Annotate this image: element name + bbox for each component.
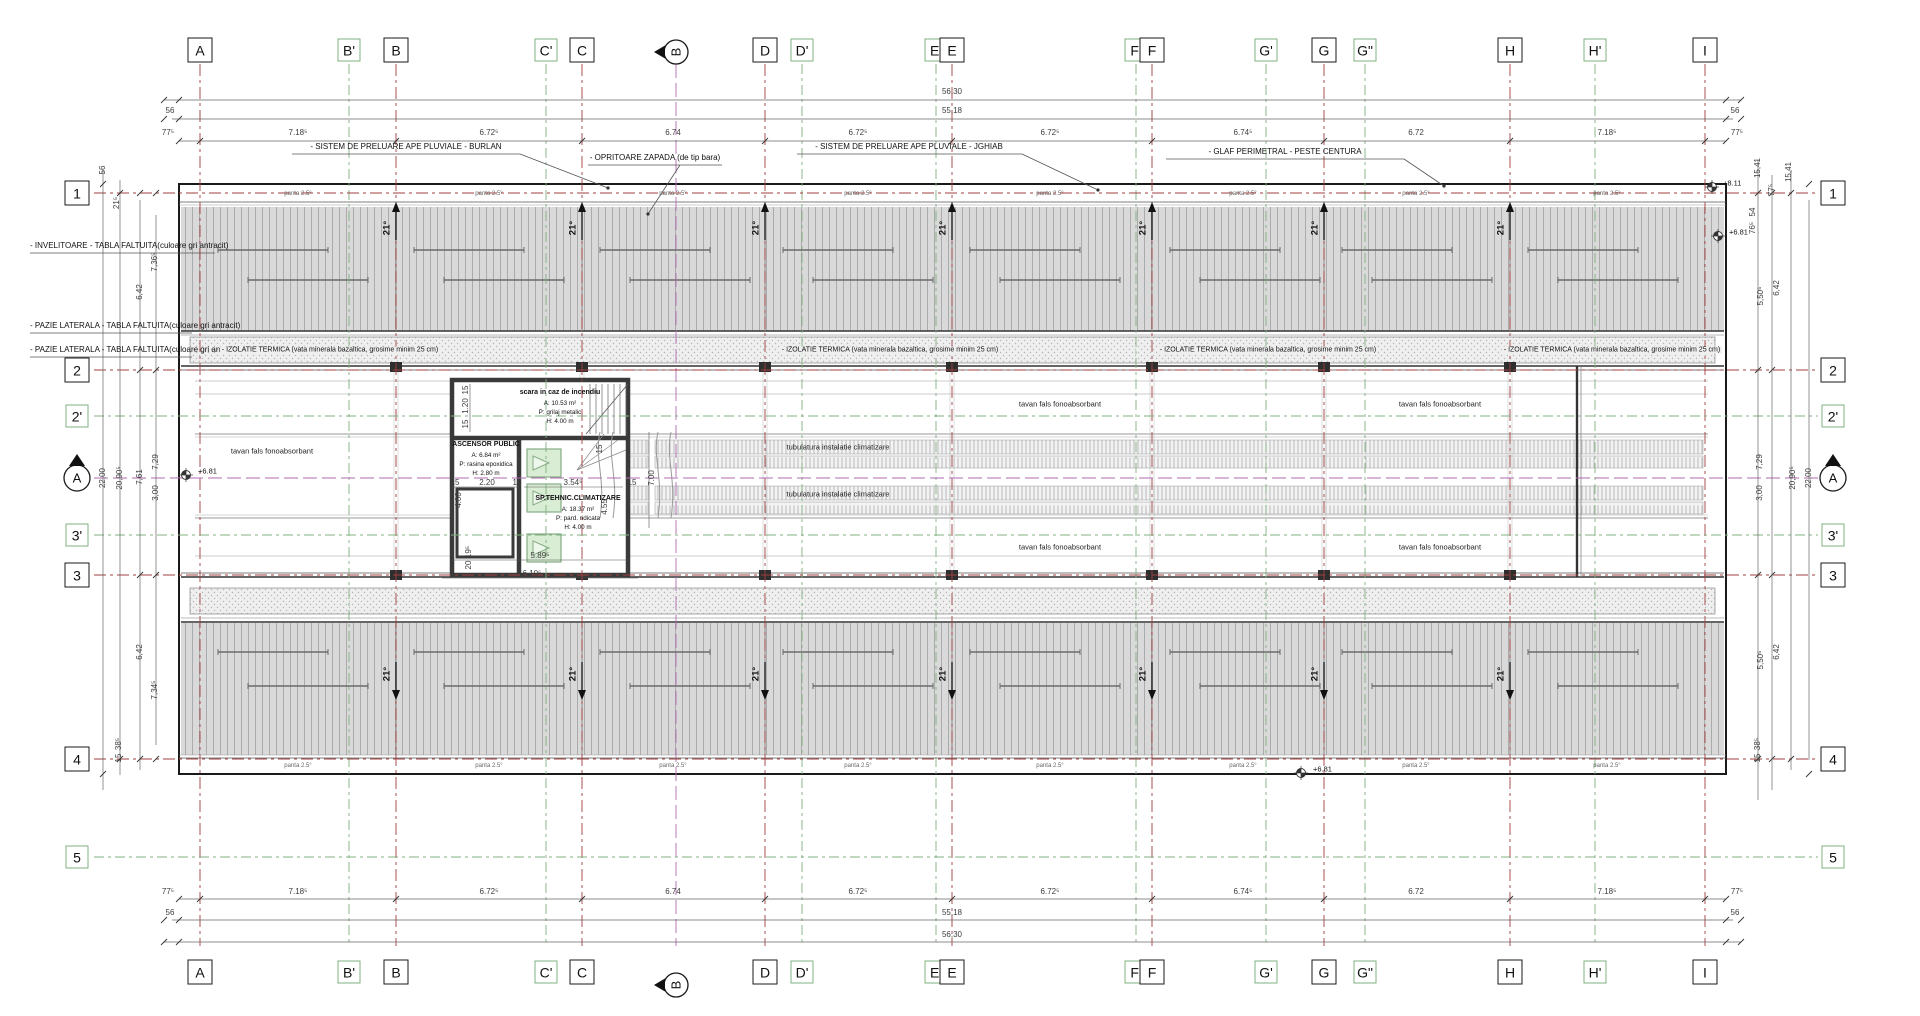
dim-text: 6.72⁵: [849, 129, 868, 137]
dim-text: 15: [451, 479, 460, 487]
grid-marker-bottom-B: B: [384, 960, 409, 985]
room-label-line: H: 2.80 m: [452, 469, 520, 478]
callout-text-6: - PAZIE LATERALA - TABLA FALTUITA(culoar…: [30, 346, 240, 354]
dim-text: 15: [596, 445, 604, 454]
dim-text: 7,34⁵: [151, 681, 159, 700]
dim-text: 6.72: [1408, 888, 1424, 896]
grid-marker-top-F: F: [1140, 38, 1165, 63]
room-label-line: P: rasina epoxidica: [452, 460, 520, 469]
grid-marker-top-H': H': [1584, 39, 1607, 62]
roof-pitch-label: panta 2.5°: [844, 191, 871, 197]
room-label-line: SP.TEHNIC.CLIMATIZARE: [535, 494, 620, 505]
dim-text: 7,29: [152, 454, 160, 470]
dim-text: 7,36⁵: [151, 253, 159, 272]
room-label-line: A: 10.53 m²: [520, 399, 601, 408]
row-marker-left-3: 3: [65, 563, 90, 588]
section-marker-B-bottom: B: [672, 979, 681, 992]
elevation-marker: +6.81: [1313, 765, 1332, 773]
grid-marker-top-E: E: [940, 38, 965, 63]
dim-text: 55,18: [942, 909, 962, 917]
callout-text-3: - GLAF PERIMETRAL - PESTE CENTURA: [1208, 148, 1361, 156]
grid-marker-bottom-D': D': [791, 961, 814, 984]
section-marker-A-right: A: [1829, 472, 1838, 485]
dim-text: 6.72⁵: [480, 129, 499, 137]
dim-text: 77⁵: [1731, 888, 1743, 896]
dim-text: 5,50⁵: [1757, 287, 1765, 306]
grid-marker-bottom-F: F: [1140, 960, 1165, 985]
roof-slope-label: 21°: [382, 667, 392, 681]
dim-text: 38⁵: [1754, 738, 1762, 750]
grid-marker-top-B: B: [384, 38, 409, 63]
roof-slope-label: 21°: [1496, 667, 1506, 681]
dim-text: 56: [1731, 107, 1740, 115]
grid-marker-bottom-H': H': [1584, 961, 1607, 984]
dim-text: 20,90⁵: [116, 466, 124, 489]
grid-marker-top-A: A: [188, 38, 213, 63]
dim-text: 5.89⁵: [531, 552, 550, 560]
dim-text: 22,00: [1805, 468, 1813, 488]
grid-marker-top-G": G": [1354, 39, 1377, 62]
roof-slope-label: 21°: [1310, 221, 1320, 235]
dim-text: 6.72⁵: [849, 888, 868, 896]
dim-text: 6.72⁵: [1041, 888, 1060, 896]
row-marker-left-2: 2: [65, 358, 90, 383]
dim-text: 76⁵: [1749, 222, 1757, 234]
zone-label: tavan fals fonoabsorbant: [231, 447, 313, 455]
row-marker-right-3': 3': [1822, 524, 1845, 547]
dim-text: 15: [513, 479, 522, 487]
dim-text: 4.00: [455, 492, 463, 508]
roof-pitch-label: panta 2.5°: [659, 191, 686, 197]
room-label-line: H: 4.00 m: [520, 417, 601, 426]
insulation-label-3: - IZOLATIE TERMICA (vata minerala bazalt…: [1502, 347, 1722, 354]
room-label-line: P: pard. ridicata: [535, 514, 620, 523]
roof-pitch-label: panta 2.5°: [1402, 191, 1429, 197]
roof-slope-label: 21°: [751, 667, 761, 681]
grid-marker-bottom-H: H: [1498, 960, 1523, 985]
dim-text: 6.72⁵: [480, 888, 499, 896]
dim-text: 54: [1749, 208, 1757, 217]
grid-marker-bottom-C: C: [570, 960, 595, 985]
room-label-hvac-room: SP.TEHNIC.CLIMATIZAREA: 18.37 m²P: pard.…: [535, 494, 620, 533]
roof-pitch-label: panta 2.5°: [284, 191, 311, 197]
grid-marker-top-I: I: [1693, 38, 1718, 63]
grid-marker-top-B': B': [338, 39, 361, 62]
dim-text: 7,61: [136, 469, 144, 485]
dim-text: 21⁵: [113, 197, 121, 209]
section-letter: B: [670, 48, 683, 57]
grid-marker-top-D': D': [791, 39, 814, 62]
roof-pitch-label: panta 2.5°: [1593, 763, 1620, 769]
row-marker-left-2': 2': [66, 405, 89, 428]
row-marker-left-3': 3': [66, 524, 89, 547]
row-marker-left-5: 5: [66, 846, 89, 869]
roof-pitch-label: panta 2.5°: [284, 763, 311, 769]
dim-text: 56,30: [942, 931, 962, 939]
grid-marker-top-G: G: [1312, 38, 1337, 63]
roof-slope-label: 21°: [1138, 667, 1148, 681]
zone-label: tavan fals fonoabsorbant: [1019, 400, 1101, 408]
dim-text: 6,42: [136, 284, 144, 300]
dim-text: 56: [166, 909, 175, 917]
dim-text: 56: [1731, 909, 1740, 917]
section-letter: B: [670, 981, 683, 990]
room-label-line: scara in caz de incendiu: [520, 388, 601, 399]
row-marker-left-4: 4: [65, 747, 90, 772]
dim-text: 6.74: [665, 888, 681, 896]
zone-label: tavan fals fonoabsorbant: [1399, 543, 1481, 551]
grid-marker-bottom-I: I: [1693, 960, 1718, 985]
zone-label: tubulatura instalatie climatizare: [787, 490, 890, 498]
roof-slope-label: 21°: [938, 221, 948, 235]
row-marker-right-1: 1: [1821, 181, 1846, 206]
dim-text: 6,42: [1773, 644, 1781, 660]
dim-text: 7.18⁵: [1598, 129, 1617, 137]
row-marker-right-4: 4: [1821, 747, 1846, 772]
room-label-line: P: grilaj metalic: [520, 408, 601, 417]
dim-text: 7.18⁵: [1598, 888, 1617, 896]
dim-text: 5,50⁵: [1757, 651, 1765, 670]
insulation-label-2: - IZOLATIE TERMICA (vata minerala bazalt…: [1158, 347, 1378, 354]
callout-text-1: - SISTEM DE PRELUARE APE PLUVIALE - JGHI…: [815, 143, 1003, 151]
callout-text-2: - OPRITOARE ZAPADA (de tip bara): [590, 154, 720, 162]
row-marker-right-2: 2: [1821, 358, 1846, 383]
dim-text: 15,41: [1754, 158, 1762, 178]
row-marker-right-2': 2': [1822, 405, 1845, 428]
roof-slope-label: 21°: [751, 221, 761, 235]
dim-text: 15: [462, 420, 470, 429]
section-marker-A-left: A: [73, 472, 82, 485]
row-marker-right-5: 5: [1822, 846, 1845, 869]
roof-slope-label: 21°: [1138, 221, 1148, 235]
roof-pitch-label: panta 2.5°: [1402, 763, 1429, 769]
dim-text: 20: [465, 561, 473, 570]
insulation-label-1: - IZOLATIE TERMICA (vata minerala bazalt…: [780, 347, 1000, 354]
room-label-line: A: 6.84 m²: [452, 451, 520, 460]
roof-slope-label: 21°: [382, 221, 392, 235]
grid-marker-top-H: H: [1498, 38, 1523, 63]
grid-marker-top-C': C': [535, 39, 558, 62]
roof-pitch-label: panta 2.5°: [1036, 191, 1063, 197]
roof-slope-label: 21°: [1496, 221, 1506, 235]
elevation-marker: +8.11: [1723, 179, 1741, 187]
dim-text: 15,41: [1785, 162, 1793, 182]
dim-text: 7,29: [1756, 454, 1764, 470]
roof-pitch-label: panta 2.5°: [1593, 191, 1620, 197]
zone-label: tavan fals fonoabsorbant: [1019, 543, 1101, 551]
grid-marker-bottom-A: A: [188, 960, 213, 985]
row-marker-left-1: 1: [65, 181, 90, 206]
dim-text: 6.74⁵: [1234, 888, 1253, 896]
dim-text: 77⁵: [162, 888, 174, 896]
dim-text: 3.54⁵: [564, 479, 583, 487]
grid-marker-top-D: D: [753, 38, 778, 63]
dim-text: 3,00: [1756, 485, 1764, 501]
dim-text: 6.72: [1408, 129, 1424, 137]
dim-text: 22,00: [99, 468, 107, 488]
room-label-fire-stair: scara in caz de incendiuA: 10.53 m²P: gr…: [520, 388, 601, 427]
room-label-line: A: 18.37 m²: [535, 505, 620, 514]
roof-pitch-label: panta 2.5°: [844, 763, 871, 769]
dim-text: 6.72⁵: [1041, 129, 1060, 137]
roof-pitch-label: panta 2.5°: [475, 191, 502, 197]
dim-text: 15: [462, 386, 470, 395]
dim-text: 15: [115, 754, 123, 763]
room-label-line: H: 4.00 m: [535, 523, 620, 532]
grid-marker-bottom-E: E: [940, 960, 965, 985]
zone-label: tubulatura instalatie climatizare: [787, 443, 890, 451]
grid-marker-bottom-B': B': [338, 961, 361, 984]
dim-text: 7.00: [648, 470, 656, 486]
dim-text: 56: [166, 107, 175, 115]
dim-text: 55,18: [942, 107, 962, 115]
roof-pitch-label: panta 2.5°: [1229, 191, 1256, 197]
roof-slope-label: 21°: [568, 667, 578, 681]
dim-text: 1.20: [462, 398, 470, 414]
dim-text: 15: [1754, 754, 1762, 763]
room-label-public-elevator: ASCENSOR PUBLICA: 6.84 m²P: rasina epoxi…: [452, 440, 520, 479]
roof-pitch-label: panta 2.5°: [659, 763, 686, 769]
elevation-marker: +6.81: [198, 467, 217, 475]
dim-text: 20,90⁵: [1789, 466, 1797, 489]
dim-text: 15: [628, 479, 637, 487]
roof-slope-label: 21°: [1310, 667, 1320, 681]
dim-text: 77⁵: [1731, 129, 1743, 137]
callout-text-4: - INVELITOARE - TABLA FALTUITA(culoare g…: [30, 242, 228, 250]
dim-text: 77⁵: [162, 129, 174, 137]
dim-text: 3,00: [152, 485, 160, 501]
grid-marker-bottom-G': G': [1255, 961, 1278, 984]
grid-marker-top-C: C: [570, 38, 595, 63]
roof-pitch-label: panta 2.5°: [1036, 763, 1063, 769]
grid-marker-bottom-G: G: [1312, 960, 1337, 985]
roof-plan-drawing: AB'BC'CBDD'E'EF'FG'GG"HH'IAB'BC'CBDD'E'E…: [0, 0, 1920, 1016]
dim-text: 6.10⁵: [523, 570, 542, 578]
dim-text: 77⁵: [1768, 184, 1776, 196]
dim-text: 56: [99, 166, 107, 175]
zone-label: tavan fals fonoabsorbant: [1399, 400, 1481, 408]
dim-text: 56,30: [942, 88, 962, 96]
row-marker-right-3: 3: [1821, 563, 1846, 588]
dim-text: 6,42: [136, 644, 144, 660]
roof-slope-label: 21°: [568, 221, 578, 235]
dim-text: 38⁵: [115, 738, 123, 750]
callout-text-0: - SISTEM DE PRELUARE APE PLUVIALE - BURL…: [310, 143, 501, 151]
dim-text: 6.74⁵: [1234, 129, 1253, 137]
plan-canvas: [0, 0, 1920, 1016]
dim-text: 7.18⁵: [289, 129, 308, 137]
elevation-marker: +6.81: [1729, 228, 1748, 236]
roof-pitch-label: panta 2.5°: [1229, 763, 1256, 769]
roof-pitch-label: panta 2.5°: [475, 763, 502, 769]
dim-text: 2.20: [479, 479, 495, 487]
dim-text: 7.18⁵: [289, 888, 308, 896]
grid-marker-bottom-D: D: [753, 960, 778, 985]
grid-marker-top-G': G': [1255, 39, 1278, 62]
callout-text-5: - PAZIE LATERALA - TABLA FALTUITA(culoar…: [30, 322, 240, 330]
room-label-line: ASCENSOR PUBLIC: [452, 440, 520, 451]
roof-slope-label: 21°: [938, 667, 948, 681]
section-marker-B-top: B: [672, 46, 681, 59]
dim-text: 6.74: [665, 129, 681, 137]
grid-marker-bottom-C': C': [535, 961, 558, 984]
grid-marker-bottom-G": G": [1354, 961, 1377, 984]
insulation-label-0: - IZOLATIE TERMICA (vata minerala bazalt…: [220, 347, 440, 354]
dim-text: 6,42: [1773, 280, 1781, 296]
dim-text: 19⁵: [465, 546, 473, 558]
